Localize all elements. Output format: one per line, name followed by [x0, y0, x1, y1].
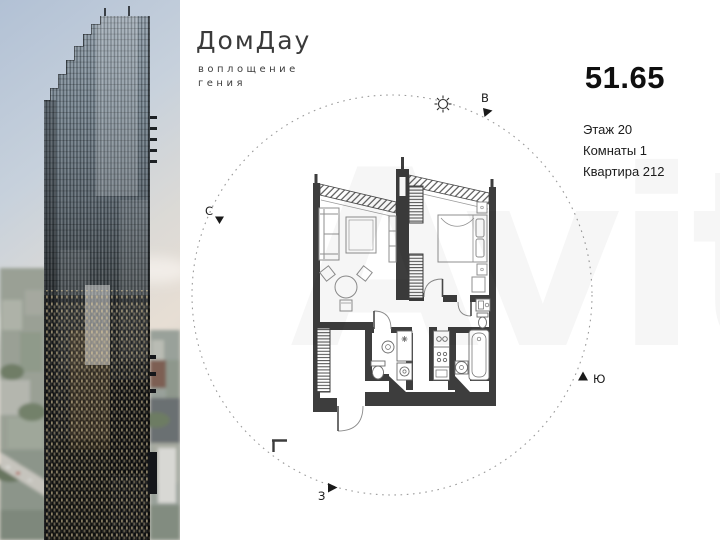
- compass-north-label: С: [205, 204, 213, 218]
- compass-east-arrow-icon: [483, 108, 493, 117]
- apartment-label: Квартира 212: [583, 161, 665, 182]
- area-value: 51.65: [585, 60, 665, 96]
- listing-details: Этаж 20 Комнаты 1 Квартира 212: [583, 119, 665, 182]
- compass-south-arrow-icon: [578, 372, 588, 381]
- rooms-label: Комнаты 1: [583, 140, 665, 161]
- corner-mark: [272, 441, 287, 453]
- compass-south-label: Ю: [593, 372, 605, 386]
- compass-west-label: З: [318, 489, 325, 503]
- compass-north-arrow-icon: [215, 217, 224, 225]
- listing-image: В С Ю З Avito ДомДау воплощение гения 51…: [0, 0, 720, 540]
- compass-east-label: В: [481, 91, 489, 105]
- building-photo: [0, 0, 180, 540]
- logo-tagline-line1: воплощение: [198, 63, 299, 77]
- floor-label: Этаж 20: [583, 119, 665, 140]
- logo: ДомДау: [196, 26, 311, 55]
- compass-west-arrow-icon: [328, 483, 338, 493]
- logo-tagline: воплощение гения: [198, 63, 299, 91]
- city-left: [0, 268, 48, 540]
- sun-icon: [435, 96, 452, 113]
- logo-tagline-line2: гения: [198, 77, 299, 91]
